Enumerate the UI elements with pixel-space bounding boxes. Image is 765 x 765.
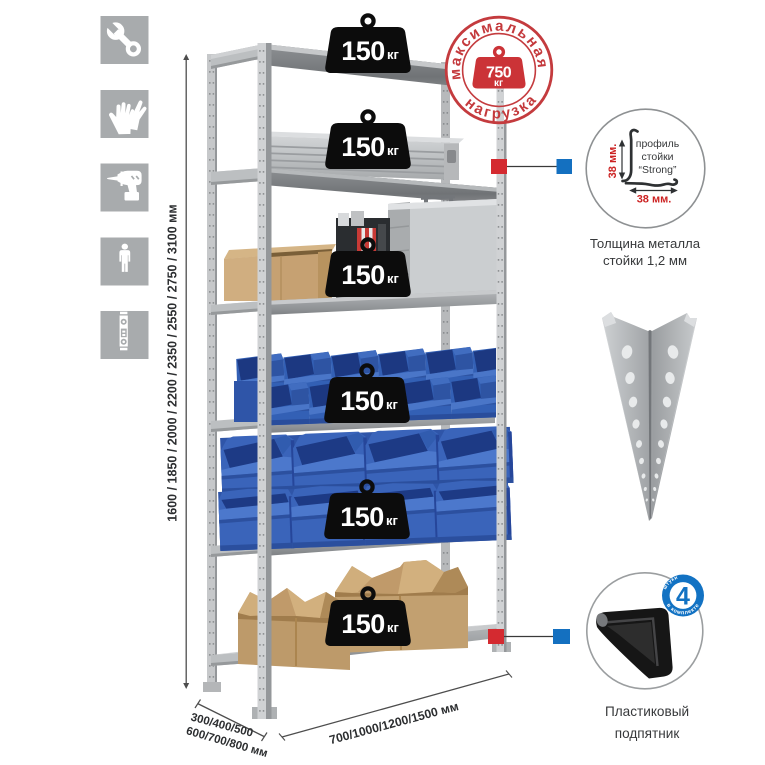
svg-text:кг: кг [494, 78, 503, 89]
svg-text:подпятник: подпятник [615, 726, 681, 741]
svg-text:стойки: стойки [641, 151, 673, 163]
svg-text:38 мм.: 38 мм. [607, 144, 619, 179]
svg-text:Толщина металла: Толщина металла [590, 236, 701, 251]
svg-text:Пластиковый: Пластиковый [605, 704, 689, 719]
svg-text:стойки 1,2 мм: стойки 1,2 мм [603, 253, 687, 268]
svg-text:4: 4 [676, 583, 690, 611]
svg-text:1600 / 1850 / 2000 / 2200 / 23: 1600 / 1850 / 2000 / 2200 / 2350 / 2550 … [166, 204, 180, 521]
svg-text:38 мм.: 38 мм. [637, 194, 672, 206]
svg-text:профиль: профиль [636, 138, 680, 150]
svg-text:“Strong”: “Strong” [639, 164, 677, 176]
